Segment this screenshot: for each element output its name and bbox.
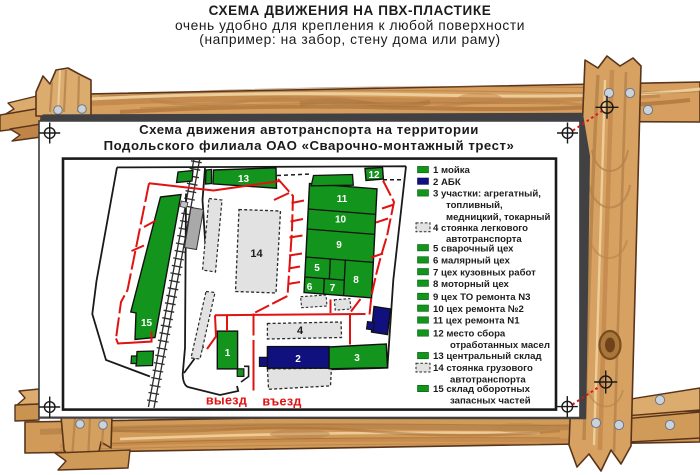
svg-text:14 стоянка грузового: 14 стоянка грузового (433, 363, 533, 374)
svg-text:7: 7 (330, 283, 336, 294)
svg-text:9: 9 (336, 240, 342, 251)
svg-text:5: 5 (314, 263, 320, 274)
svg-text:выезд: выезд (206, 394, 247, 408)
svg-text:отработанных масел: отработанных масел (450, 340, 550, 351)
svg-text:2 АБК: 2 АБК (433, 177, 461, 188)
svg-text:6: 6 (307, 282, 313, 293)
svg-text:9 цех ТО ремонта N3: 9 цех ТО ремонта N3 (433, 292, 531, 303)
svg-text:13: 13 (238, 174, 250, 185)
svg-text:Подольского филиала ОАО «Сваро: Подольского филиала ОАО «Сварочно-монтаж… (104, 138, 515, 153)
svg-text:медницкий, токарный: медницкий, токарный (446, 212, 550, 223)
svg-text:5 сварочный цех: 5 сварочный цех (433, 243, 514, 254)
svg-text:топливный,: топливный, (446, 200, 503, 211)
svg-text:8 моторный цех: 8 моторный цех (433, 279, 510, 290)
svg-text:4 стоянка легкового: 4 стоянка легкового (433, 223, 528, 234)
svg-text:11 цех ремонта N1: 11 цех ремонта N1 (433, 316, 520, 327)
svg-text:12: 12 (368, 170, 380, 181)
svg-text:очень удобно для крепления к л: очень удобно для крепления к любой повер… (175, 18, 525, 33)
svg-text:10 цех ремонта №2: 10 цех ремонта №2 (433, 304, 524, 315)
svg-text:1: 1 (225, 348, 231, 359)
svg-text:10: 10 (335, 215, 347, 226)
svg-text:запасных частей: запасных частей (450, 396, 531, 407)
svg-text:въезд: въезд (262, 395, 301, 409)
svg-text:1 мойка: 1 мойка (433, 165, 471, 176)
svg-text:8: 8 (353, 275, 359, 286)
svg-text:СХЕМА ДВИЖЕНИЯ НА ПВХ-ПЛАСТИКЕ: СХЕМА ДВИЖЕНИЯ НА ПВХ-ПЛАСТИКЕ (209, 3, 492, 18)
svg-text:13 центральный склад: 13 центральный склад (433, 351, 542, 362)
svg-text:15 склад оборотных: 15 склад оборотных (433, 384, 531, 395)
svg-text:14: 14 (250, 248, 263, 260)
svg-text:3: 3 (354, 353, 360, 364)
svg-text:Схема движения автотранспорта: Схема движения автотранспорта на террито… (139, 122, 479, 137)
svg-text:2: 2 (295, 354, 301, 365)
svg-text:11: 11 (337, 194, 348, 205)
svg-text:7 цех кузовных работ: 7 цех кузовных работ (433, 267, 536, 278)
svg-text:15: 15 (141, 318, 153, 329)
svg-text:3 участки: агрегатный,: 3 участки: агрегатный, (433, 189, 541, 200)
svg-text:4: 4 (297, 325, 304, 337)
svg-text:(например: на забор, стену дом: (например: на забор, стену дома или раму… (199, 32, 500, 47)
svg-text:12 место сбора: 12 место сбора (433, 329, 506, 340)
svg-text:6 малярный цех: 6 малярный цех (433, 256, 511, 267)
